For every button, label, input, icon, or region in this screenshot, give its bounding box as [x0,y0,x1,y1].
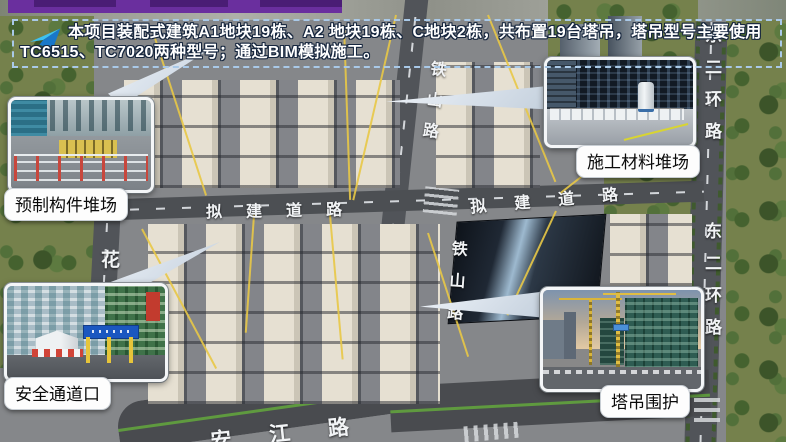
striped-fence [14,154,148,181]
crosswalk [463,422,520,442]
crane-mast [589,298,592,365]
plot-south-east [610,214,692,286]
purple-bar-segment [260,0,342,7]
tower-crane-image [543,290,701,389]
inset-precast-card [8,97,154,193]
callout-label-safety: 安全通道口 [4,377,111,410]
callout-label-materials: 施工材料堆场 [576,145,700,178]
purple-bar-segment [150,0,228,7]
callout-label-text: 预制构件堆场 [15,196,117,215]
callout-label-text: 安全通道口 [15,385,100,404]
cement-silo [638,82,654,112]
striped-barrier [32,349,83,356]
materials-yard-image [547,60,693,145]
inset-safety-card [4,283,168,382]
title-banner: 本项目装配式建筑A1地块19栋、A2 地块19栋、C地块2栋，共布置19台塔吊，… [12,19,782,68]
canopy-post [86,337,90,363]
purple-top-bar [8,0,342,13]
callout-label-text: 施工材料堆场 [587,153,689,172]
callout-label-text: 塔吊围护 [611,393,679,412]
safety-passage-image [7,286,165,379]
precast-yard-image [11,100,151,190]
silhouette-building [564,312,577,360]
crane-cab [613,324,629,331]
crosswalk [423,186,460,215]
red-hoist [146,292,160,322]
site-fence [550,108,684,120]
crosswalk [694,392,720,422]
inset-crane-card [540,287,704,392]
canopy-post [129,337,133,363]
plot-a2-south [148,224,440,404]
green-glass-building [625,298,698,369]
plot-north-east [436,62,540,188]
canopy-post [107,337,111,363]
road-label-hua: 花 [101,245,120,272]
trees-right [726,20,786,442]
crane-jib [559,298,622,300]
callout-label-crane: 塔吊围护 [600,385,690,418]
crane-jib [603,293,676,295]
banner-text-line1: 本项目装配式建筑A1地块19栋、A2 地块19栋、C地块2栋，共布置19台塔吊，… [68,23,762,43]
banner-text-line2: TC6515、TC7020两种型号；通过BIM模拟施工。 [20,43,380,63]
slide: 铁山路 铁山路 拟建道路 拟建道路 东二环路 东二环路 花 安江路 预制构件堆场 [0,0,786,442]
inset-materials-card [544,57,696,148]
callout-label-precast: 预制构件堆场 [4,188,128,221]
road-label-nijian-west: 拟建道路 [206,196,366,223]
purple-bar-segment [34,0,116,7]
